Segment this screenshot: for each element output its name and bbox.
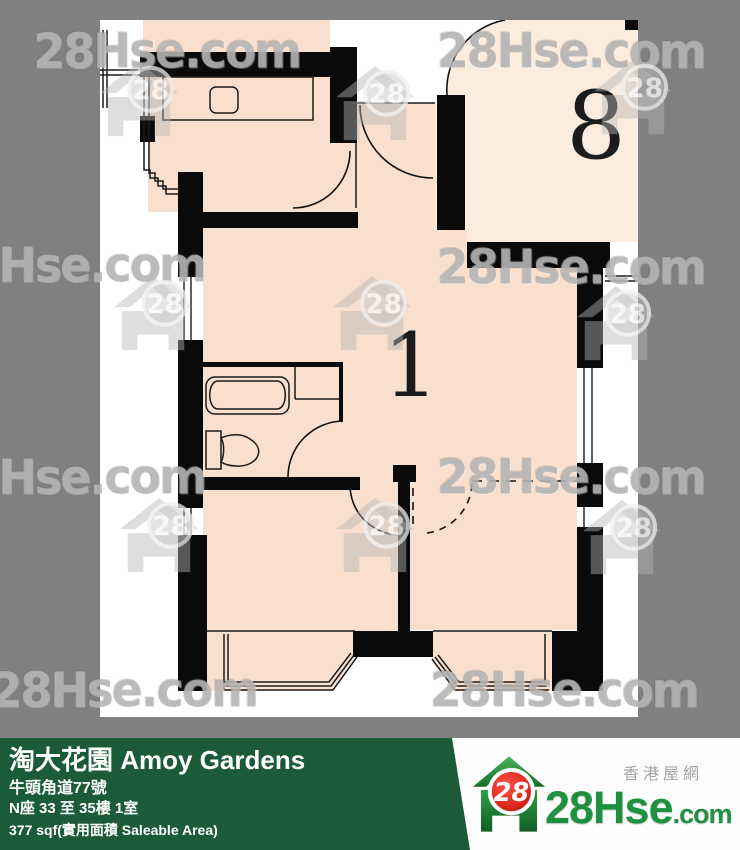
site-logo[interactable]: 28 28Hse.com 香港屋網 — [452, 738, 740, 850]
logo-wordmark: 28Hse.com — [545, 782, 732, 834]
passage — [435, 230, 467, 268]
footer: 淘大花園 Amoy Gardens 牛頭角道77號 N座 33 至 35樓 1室… — [0, 738, 740, 850]
floor-plan: 1 8 — [100, 20, 638, 717]
logo-brand-suffix: .com — [673, 799, 732, 829]
bedroom — [203, 477, 398, 631]
block-floor-flat: N座 33 至 35樓 1室 — [9, 797, 138, 818]
logo-brand-main: 28Hse — [545, 782, 673, 833]
upper-strip — [143, 20, 330, 52]
logo-house-icon: 28 — [473, 754, 545, 834]
unit-8-label: 8 — [566, 72, 626, 181]
saleable-area: 377 sqf(實用面積 Saleable Area) — [9, 820, 218, 840]
estate-address: 牛頭角道77號 — [9, 774, 107, 798]
site-name-chinese: 香港屋網 — [623, 760, 703, 784]
gray-band — [0, 717, 740, 738]
unit-1-label: 1 — [383, 314, 439, 417]
estate-name: 淘大花園 Amoy Gardens — [9, 740, 305, 777]
logo-badge: 28 — [494, 778, 530, 808]
page: 1 8 28Hse.com28Hse.com28Hse.com28Hse.com… — [0, 0, 740, 850]
footer-info-panel: 淘大花園 Amoy Gardens 牛頭角道77號 N座 33 至 35樓 1室… — [0, 738, 470, 850]
